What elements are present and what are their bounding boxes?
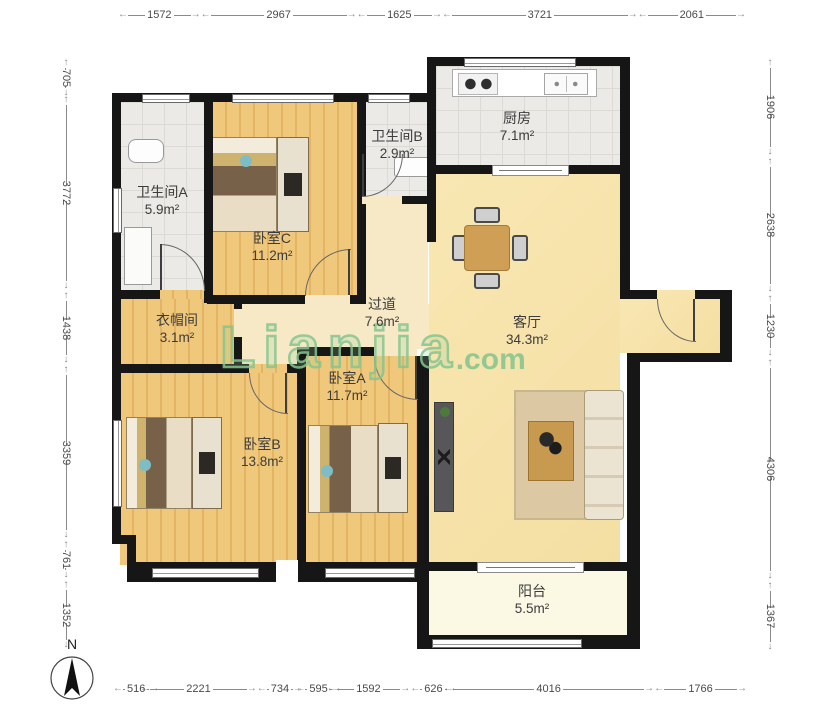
arrow-up-icon: ↑	[768, 157, 773, 167]
window	[232, 94, 334, 103]
dimension-value: 3359	[58, 441, 74, 465]
dimension-segment: ←626→	[410, 683, 443, 695]
door-panel	[285, 373, 287, 413]
room-name: 卧室C	[253, 230, 291, 246]
dimension-value: 1352	[58, 603, 74, 627]
door-opening	[249, 364, 287, 373]
arrow-right-icon: →	[347, 10, 357, 20]
room-area: 11.7m²	[297, 387, 397, 405]
stove	[458, 73, 498, 95]
chair	[512, 235, 528, 261]
dimension-value: 1766	[686, 683, 714, 695]
room-name: 卧室A	[328, 370, 365, 386]
arrow-right-icon: →	[191, 10, 201, 20]
room-name: 卫生间A	[136, 184, 187, 200]
wall	[112, 290, 160, 299]
dimension-value: 761	[58, 551, 74, 569]
arrow-up-icon: ↑	[768, 581, 773, 591]
window	[368, 94, 410, 103]
dimension-value: 2638	[762, 213, 778, 237]
compass-north-label: N	[67, 636, 77, 652]
arrow-up-icon: ↑	[768, 358, 773, 368]
door-panel	[348, 249, 350, 295]
arrow-right-icon: →	[628, 10, 638, 20]
wall-notch	[276, 560, 298, 584]
door-opening	[234, 309, 242, 337]
dimension-value: 1625	[385, 9, 413, 21]
dimension-value: 4016	[534, 683, 562, 695]
arrow-left-icon: ←	[140, 684, 150, 694]
arrow-up-icon: ↑	[63, 540, 68, 550]
arrow-right-icon: →	[247, 684, 257, 694]
room-area: 7.6m²	[332, 313, 432, 331]
door-opening	[160, 290, 204, 299]
wall	[635, 353, 732, 362]
arrow-left-icon: ←	[327, 684, 337, 694]
dimension-value: 626	[422, 683, 444, 695]
kitchen-sink	[544, 73, 588, 95]
wall	[417, 356, 429, 649]
dimension-value: 1367	[762, 604, 778, 628]
dimension-value: 1572	[145, 9, 173, 21]
sliding-door	[477, 562, 584, 573]
dimension-segment: ↑761↓	[57, 540, 75, 580]
dimension-segment: ←1625→	[357, 9, 442, 21]
window	[142, 94, 190, 103]
arrow-down-icon: ↓	[768, 642, 773, 652]
sofa	[584, 390, 624, 520]
bathroom-vanity	[124, 227, 152, 285]
dimension-value: 2967	[264, 9, 292, 21]
dimension-segment: ←1572→	[118, 9, 201, 21]
bed	[308, 425, 378, 513]
room-area: 7.1m²	[467, 127, 567, 145]
wall	[720, 290, 732, 362]
wall	[620, 290, 657, 299]
wall	[417, 562, 477, 571]
room-floor-hallway	[365, 202, 428, 305]
compass: N	[42, 636, 102, 706]
wall	[402, 196, 436, 204]
bed	[126, 417, 192, 509]
arrow-left-icon: ←	[257, 684, 267, 694]
tv-cabinet	[434, 402, 454, 512]
floorplan: 卫生间A5.9m² 卧室C11.2m² 卫生间B2.9m² 厨房7.1m² 过道…	[112, 57, 734, 651]
dimension-segment: ↑1438↓	[54, 291, 78, 366]
dimension-value: 1438	[58, 316, 74, 340]
arrow-left-icon: ←	[357, 10, 367, 20]
arrow-left-icon: ←	[118, 10, 128, 20]
dimension-segment: ←2061→	[638, 9, 746, 21]
wall	[620, 57, 630, 299]
room-name: 阳台	[518, 583, 546, 599]
arrow-left-icon: ←	[442, 10, 452, 20]
dining-table	[464, 225, 510, 271]
room-label-bedroom-b: 卧室B13.8m²	[212, 435, 312, 471]
dimension-segment: ↑3772↓	[54, 95, 78, 291]
arrow-left-icon: ←	[113, 684, 123, 694]
dimension-segment: ↑1906↓	[758, 58, 782, 157]
room-name: 客厅	[513, 314, 541, 330]
room-name: 衣帽间	[156, 312, 198, 328]
room-label-cloakroom: 衣帽间3.1m²	[127, 311, 227, 347]
dimension-segment: ←734→	[257, 683, 296, 695]
dimension-segment: ↑1367↓	[758, 581, 782, 652]
dimension-segment: ←4016→	[443, 683, 654, 695]
wall	[582, 562, 627, 571]
wall	[567, 165, 623, 174]
bathtub	[128, 139, 164, 163]
window	[464, 58, 576, 67]
arrow-up-icon: ↑	[768, 294, 773, 304]
dimension-strip-bottom: ←516→←2221→←734→←595→←1592→←626→←4016→←1…	[113, 680, 747, 698]
dimension-value: 3772	[58, 180, 74, 204]
dimension-strip-left: ↑705↓↑3772↓↑1438↓↑3359↓↑761↓↑1352↓	[56, 58, 76, 650]
room-label-kitchen: 厨房7.1m²	[467, 109, 567, 145]
room-name: 卫生间B	[371, 128, 422, 144]
wardrobe	[378, 423, 408, 513]
arrow-right-icon: →	[737, 684, 747, 694]
dimension-value: 1230	[762, 313, 778, 337]
bed	[209, 137, 277, 232]
room-area: 34.3m²	[477, 331, 577, 349]
dimension-value: 2061	[678, 9, 706, 21]
door-opening	[362, 196, 402, 204]
dimension-strip-right: ↑1906↓↑2638↓↑1230↓↑4306↓↑1367↓	[760, 58, 780, 652]
room-name: 厨房	[503, 110, 531, 126]
dimension-value: 2221	[184, 683, 212, 695]
dimension-value: 3721	[526, 9, 554, 21]
room-area: 2.9m²	[347, 145, 447, 163]
room-label-balcony: 阳台5.5m²	[482, 582, 582, 618]
dimension-segment: ←1592→	[327, 683, 411, 695]
floorplan-page: ←1572→←2967→←1625→←3721→←2061→ ←516→←222…	[0, 0, 831, 709]
arrow-left-icon: ←	[654, 684, 664, 694]
room-name: 过道	[368, 296, 396, 312]
dimension-segment: ↑705↓	[57, 58, 75, 95]
dimension-segment: ←2221→	[140, 683, 257, 695]
room-area: 5.9m²	[112, 201, 212, 219]
dimension-segment: ←3721→	[442, 9, 638, 21]
compass-icon	[46, 652, 98, 704]
wall	[427, 165, 492, 174]
arrow-right-icon: →	[644, 684, 654, 694]
room-label-bedroom-a: 卧室A11.7m²	[297, 369, 397, 405]
door-opening	[374, 347, 417, 356]
arrow-left-icon: ←	[295, 684, 305, 694]
room-name: 卧室B	[243, 436, 280, 452]
dimension-segment: ↑1230↓	[758, 294, 782, 358]
wardrobe	[277, 137, 309, 232]
arrow-right-icon: →	[400, 684, 410, 694]
dimension-segment: ←1766→	[654, 683, 747, 695]
arrow-up-icon: ↑	[64, 580, 69, 590]
dimension-segment: ↑2638↓	[758, 157, 782, 294]
arrow-right-icon: →	[736, 10, 746, 20]
room-area: 5.5m²	[482, 600, 582, 618]
dimension-segment: ←595→	[295, 683, 326, 695]
arrow-up-icon: ↑	[64, 95, 69, 105]
wall	[627, 353, 640, 649]
arrow-left-icon: ←	[638, 10, 648, 20]
coffee-table	[528, 421, 574, 481]
dimension-segment: ↑3359↓	[54, 365, 78, 540]
dimension-value: 4306	[762, 457, 778, 481]
dimension-value: 1906	[762, 95, 778, 119]
room-area: 11.2m²	[222, 247, 322, 265]
arrow-up-icon: ↑	[63, 58, 68, 68]
arrow-up-icon: ↑	[64, 291, 69, 301]
dimension-value: 1592	[354, 683, 382, 695]
room-label-living-room: 客厅34.3m²	[477, 313, 577, 349]
dimension-segment: ←516→	[113, 683, 140, 695]
arrow-up-icon: ↑	[64, 365, 69, 375]
dimension-segment: ↑4306↓	[758, 358, 782, 581]
arrow-left-icon: ←	[410, 684, 420, 694]
wall	[297, 347, 374, 356]
chair	[474, 207, 500, 223]
dimension-segment: ←2967→	[201, 9, 357, 21]
sliding-door	[492, 165, 569, 176]
door-panel	[693, 299, 695, 341]
door-panel	[415, 356, 417, 399]
room-label-bathroom-b: 卫生间B2.9m²	[347, 127, 447, 163]
dimension-value: 734	[269, 683, 291, 695]
arrow-left-icon: ←	[443, 684, 453, 694]
dimension-value: 705	[58, 69, 74, 87]
room-area: 3.1m²	[127, 329, 227, 347]
door-panel	[160, 244, 162, 290]
room-label-bathroom-a: 卫生间A5.9m²	[112, 183, 212, 219]
window	[113, 420, 122, 507]
room-label-bedroom-c: 卧室C11.2m²	[222, 229, 322, 265]
window	[325, 568, 415, 578]
chair	[474, 273, 500, 289]
window	[152, 568, 259, 578]
arrow-right-icon: →	[432, 10, 442, 20]
arrow-up-icon: ↑	[768, 58, 773, 68]
room-area: 13.8m²	[212, 453, 312, 471]
window	[432, 639, 582, 648]
wall	[207, 295, 305, 304]
arrow-left-icon: ←	[201, 10, 211, 20]
dimension-strip-top: ←1572→←2967→←1625→←3721→←2061→	[118, 6, 746, 24]
room-label-hallway: 过道7.6m²	[332, 295, 432, 331]
wall	[112, 364, 249, 373]
